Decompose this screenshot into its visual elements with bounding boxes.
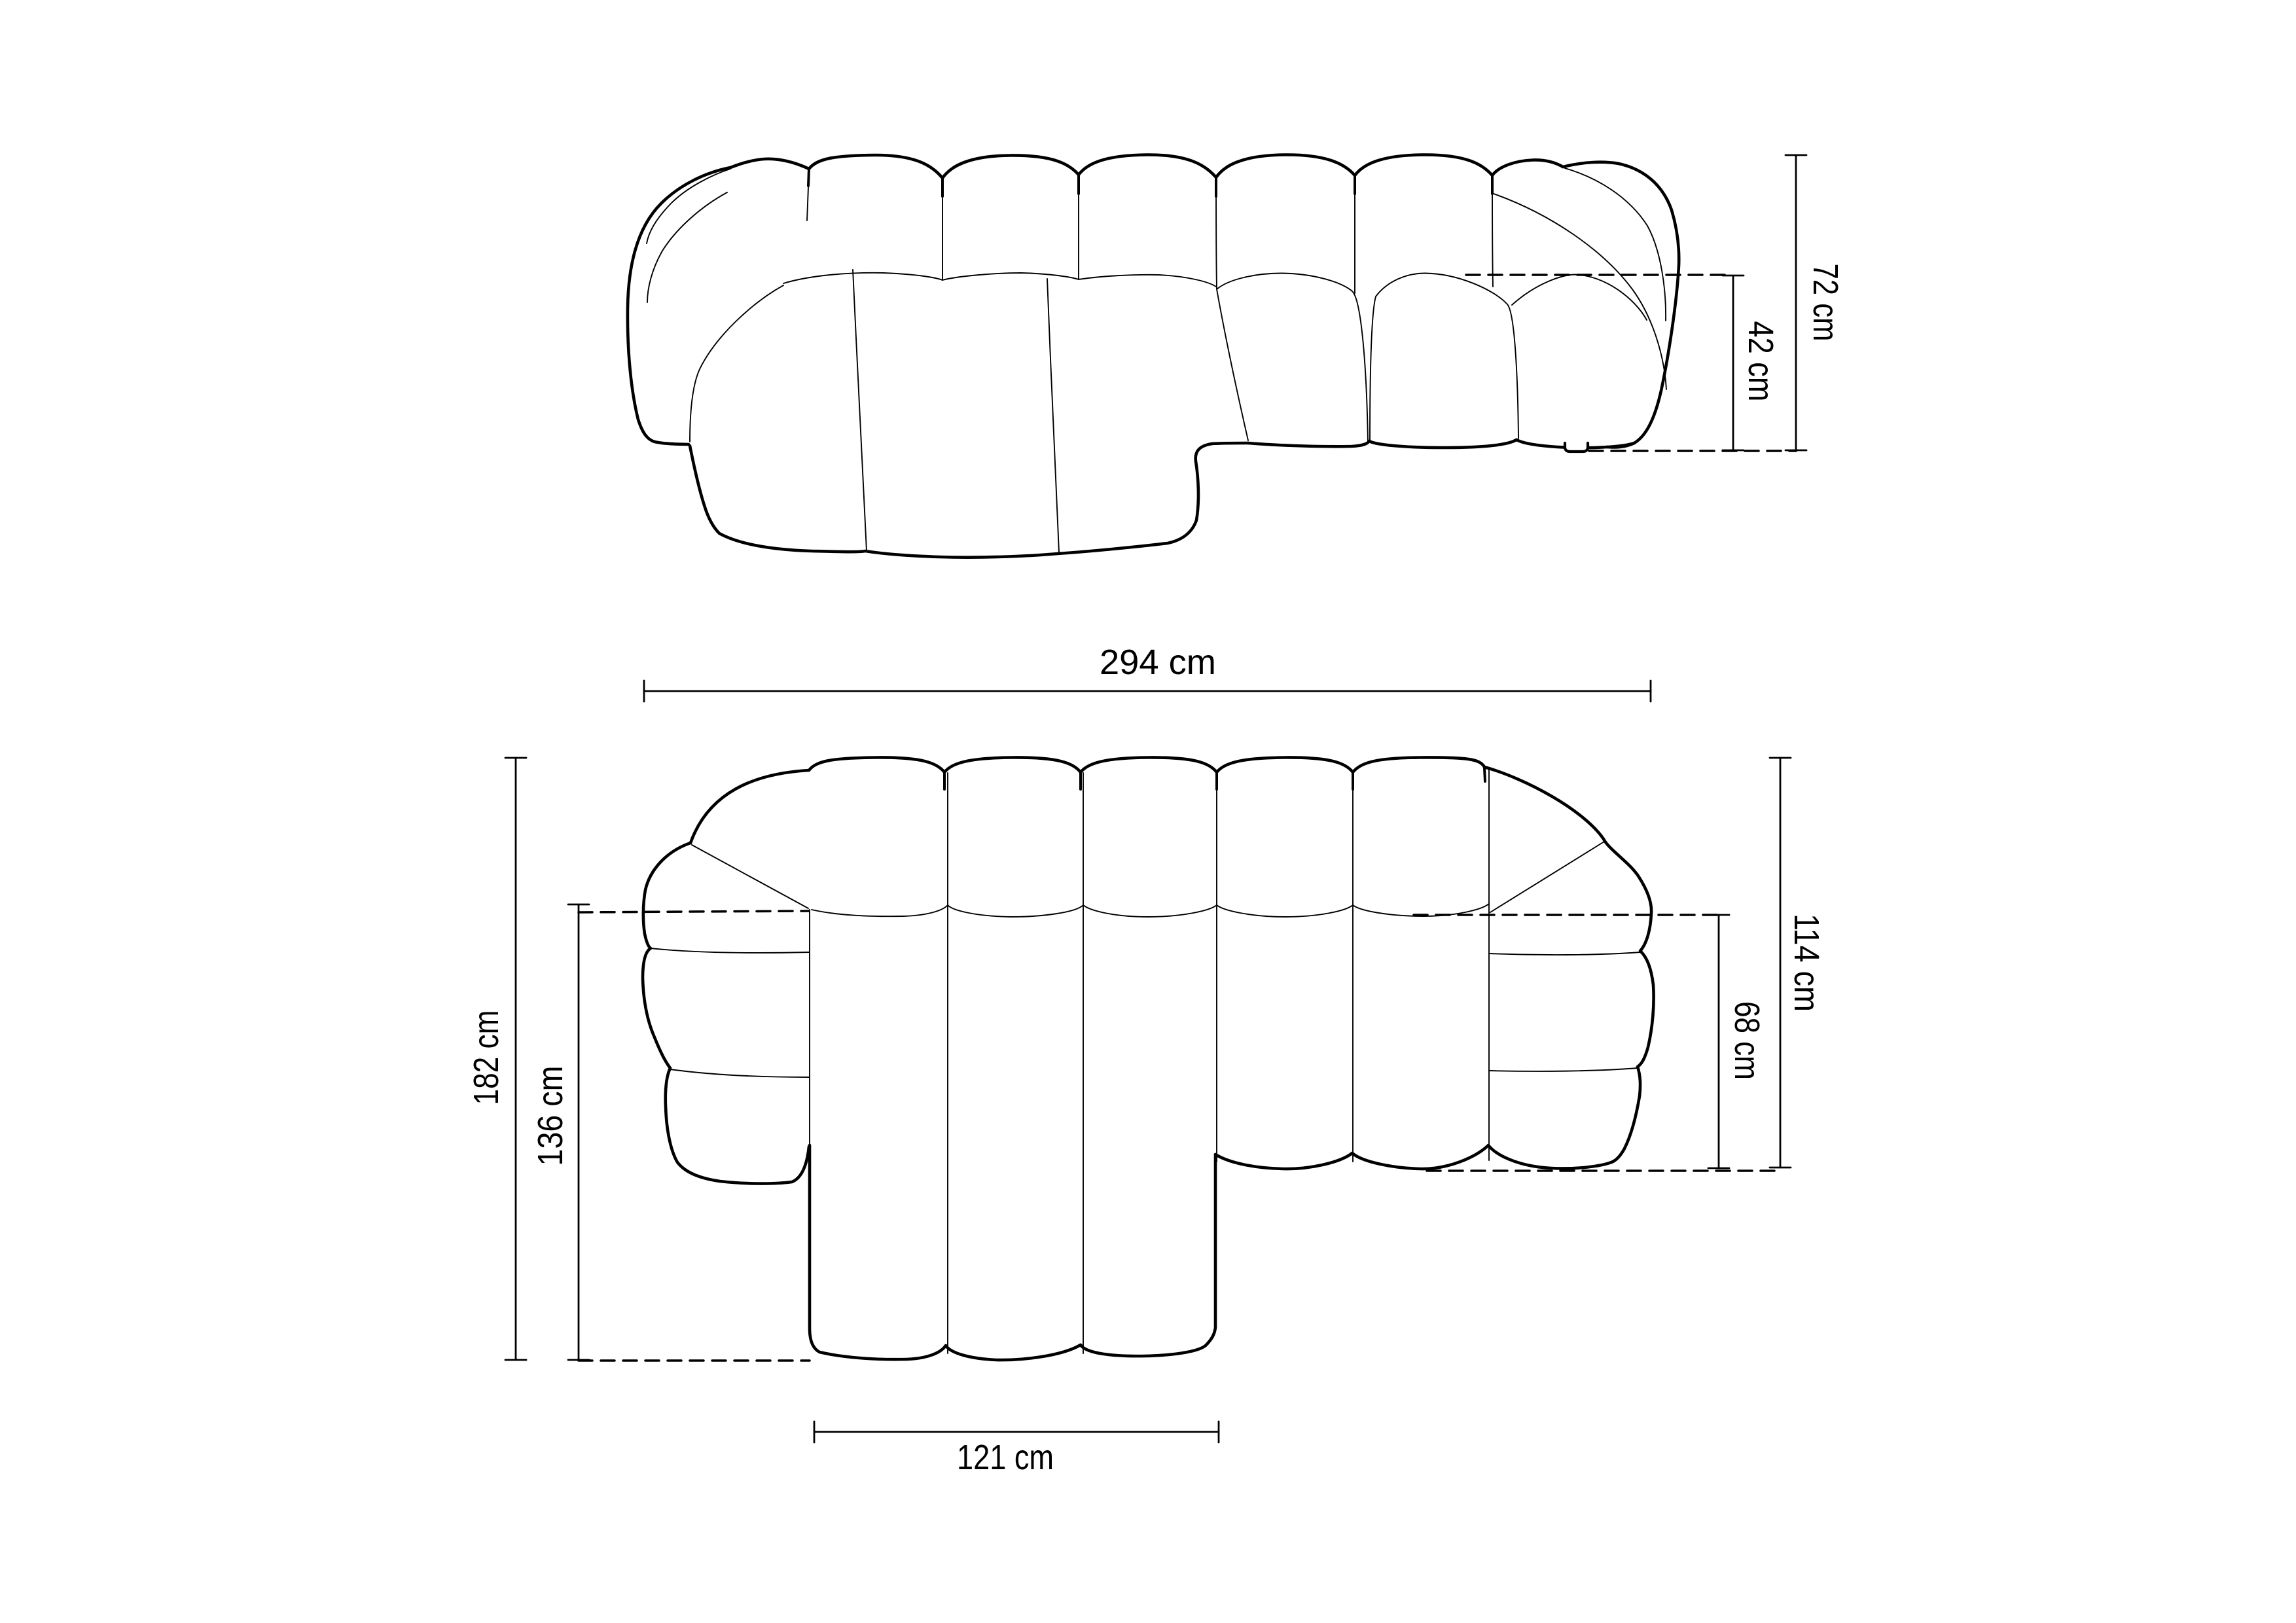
svg-text:42 cm: 42 cm	[1741, 321, 1780, 402]
svg-text:114 cm: 114 cm	[1787, 914, 1826, 1012]
svg-text:182 cm: 182 cm	[467, 1010, 506, 1105]
svg-text:72 cm: 72 cm	[1806, 264, 1845, 342]
svg-text:294 cm: 294 cm	[1100, 643, 1216, 682]
svg-text:68 cm: 68 cm	[1727, 1001, 1767, 1080]
svg-text:136 cm: 136 cm	[531, 1066, 570, 1166]
svg-text:121 cm: 121 cm	[957, 1438, 1054, 1477]
